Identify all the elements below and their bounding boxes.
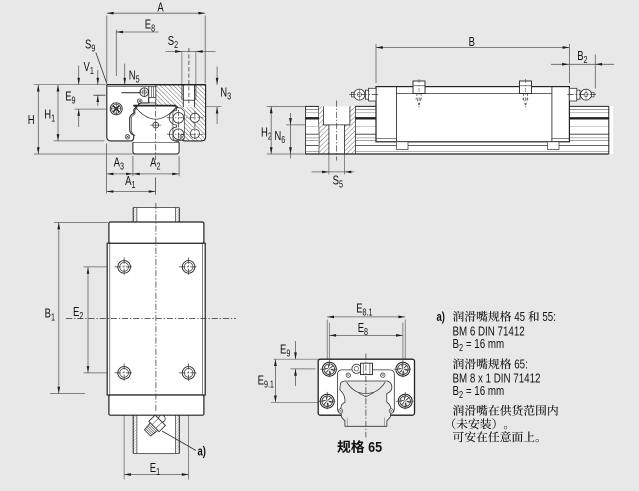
svg-text:65: 65 [368, 439, 382, 455]
svg-text:a): a) [198, 445, 207, 459]
svg-text:A: A [157, 1, 164, 15]
svg-text:B: B [469, 35, 476, 49]
svg-text:55:: 55: [540, 309, 556, 324]
svg-text:a): a) [437, 310, 446, 324]
svg-text:45: 45 [512, 309, 528, 324]
svg-text:65:: 65: [512, 357, 528, 372]
svg-text:H: H [28, 114, 35, 128]
